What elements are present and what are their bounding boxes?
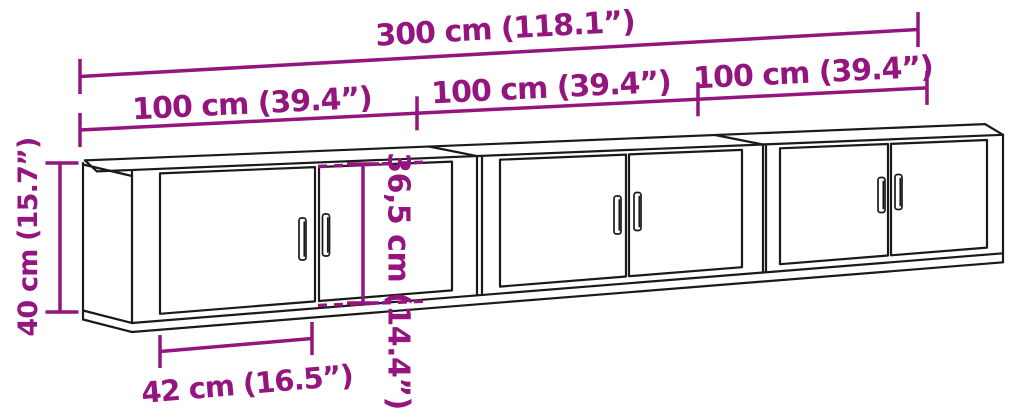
- cabinet-top-front-edge: [97, 135, 1003, 172]
- label-section-width-1: 100 cm (39.4”): [131, 81, 372, 128]
- top-slant-junction-2: [715, 135, 763, 145]
- label-door-width: 42 cm (16.5”): [140, 358, 354, 410]
- cab2-door-left: [500, 155, 626, 287]
- top-slant-right-end: [985, 124, 1003, 135]
- diagram-canvas: 300 cm (118.1”) 100 cm (39.4”) 100 cm (3…: [0, 0, 1020, 417]
- cab1-door-left: [160, 167, 315, 314]
- cabinet-row: [83, 124, 1003, 332]
- label-height: 40 cm (15.7”): [13, 137, 44, 336]
- wall-cabinet-dimension-diagram: 300 cm (118.1”) 100 cm (39.4”) 100 cm (3…: [0, 0, 1020, 417]
- cab3-door-right: [891, 140, 987, 255]
- cab2-door-right: [629, 150, 742, 276]
- cabinet-bottom-lip: [132, 262, 1003, 332]
- cabinet-top-back-edge: [85, 124, 985, 160]
- dimension-labels: 300 cm (118.1”) 100 cm (39.4”) 100 cm (3…: [13, 4, 934, 410]
- top-slant-junction-1: [429, 147, 477, 157]
- cab3-door-left: [780, 144, 888, 264]
- label-inner-height: 36,5 cm (14.4”): [381, 152, 416, 410]
- label-section-width-2: 100 cm (39.4”): [430, 65, 671, 112]
- cabinet-bottom-edge: [132, 253, 1003, 323]
- dim-line-door-width: [160, 339, 312, 352]
